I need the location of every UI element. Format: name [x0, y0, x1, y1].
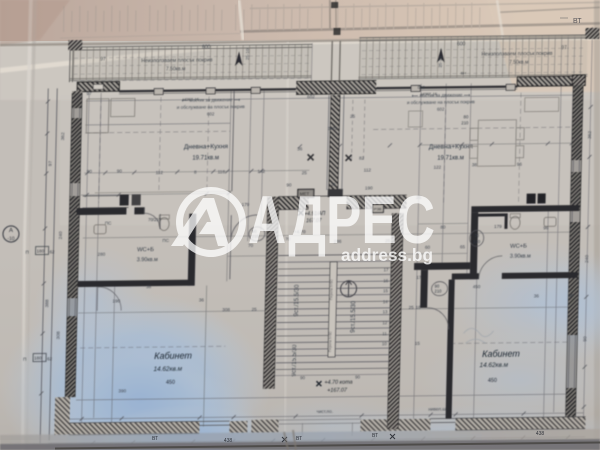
svg-text:82: 82: [359, 156, 365, 161]
svg-text:ВТ: ВТ: [573, 18, 582, 25]
svg-text:240: 240: [58, 231, 64, 239]
svg-text:3.90кв.м: 3.90кв.м: [137, 257, 158, 263]
svg-text:3.90кв.м: 3.90кв.м: [510, 254, 531, 260]
svg-text:17: 17: [416, 275, 422, 280]
svg-text:118: 118: [218, 169, 226, 174]
svg-text:Кабинет: Кабинет: [154, 351, 192, 361]
svg-text:Кабинет: Кабинет: [482, 349, 520, 359]
svg-text:600: 600: [457, 41, 466, 47]
svg-text:WC+Б: WC+Б: [137, 247, 154, 253]
svg-text:25-10: 25-10: [438, 56, 443, 68]
svg-text:280: 280: [98, 252, 106, 257]
svg-text:16: 16: [383, 278, 389, 283]
svg-text:70/210: 70/210: [148, 217, 162, 222]
svg-text:14.62кв.м: 14.62кв.м: [479, 362, 508, 369]
svg-text:25: 25: [409, 305, 415, 310]
svg-text:90: 90: [569, 293, 575, 298]
svg-text:13: 13: [383, 309, 389, 314]
svg-text:ВТ: ВТ: [152, 436, 158, 442]
svg-text:142: 142: [257, 169, 265, 174]
svg-text:9ст./15.5/30: 9ст./15.5/30: [351, 300, 358, 333]
svg-text:П: П: [25, 250, 28, 255]
svg-text:25: 25: [350, 114, 356, 119]
svg-text:600: 600: [202, 45, 211, 51]
svg-text:450: 450: [166, 380, 175, 386]
svg-text:362: 362: [60, 132, 66, 140]
svg-text:7.50кв.м: 7.50кв.м: [166, 66, 186, 72]
svg-text:36: 36: [534, 293, 540, 298]
svg-text:ВТ: ВТ: [296, 436, 302, 442]
svg-text:ВТ: ВТ: [372, 433, 378, 439]
svg-text:Неизползваем плосък покрив: Неизползваем плосък покрив: [481, 51, 553, 58]
svg-text:Перила h=90: Перила h=90: [328, 331, 332, 352]
svg-text:9ст./15.5/30: 9ст./15.5/30: [292, 344, 299, 377]
svg-text:210: 210: [461, 120, 469, 125]
svg-text:и обслужване на плосък покрив: и обслужване на плосък покрив: [177, 104, 246, 110]
svg-text:П: П: [23, 357, 26, 362]
svg-text:address.bg: address.bg: [341, 245, 433, 265]
svg-text:80: 80: [440, 225, 446, 230]
svg-text:+4.70 кота: +4.70 кота: [324, 380, 352, 386]
svg-text:Перила h=90: Перила h=90: [329, 279, 333, 300]
svg-text:ПС: ПС: [105, 221, 112, 226]
svg-text:11: 11: [382, 331, 387, 336]
svg-text:450: 450: [488, 378, 497, 384]
svg-text:⟵ мостик за движение ⟶: ⟵ мостик за движение ⟶: [182, 97, 241, 103]
svg-text:438: 438: [224, 438, 233, 444]
svg-text:97: 97: [100, 57, 106, 63]
svg-text:19.71кв.м: 19.71кв.м: [437, 155, 464, 161]
svg-text:36: 36: [328, 126, 334, 131]
svg-text:602: 602: [437, 107, 445, 112]
svg-text:-10: -10: [7, 236, 14, 242]
svg-text:62: 62: [49, 249, 55, 254]
svg-text:12: 12: [382, 320, 388, 325]
svg-text:179: 179: [494, 224, 502, 229]
svg-text:390: 390: [118, 388, 126, 393]
svg-text:602: 602: [307, 94, 315, 99]
svg-text:17: 17: [383, 267, 389, 272]
svg-text:112: 112: [364, 168, 372, 173]
svg-text:388: 388: [44, 299, 50, 307]
svg-text:16: 16: [416, 305, 422, 310]
svg-text:90: 90: [300, 375, 306, 380]
svg-text:36: 36: [199, 298, 205, 303]
svg-text:Дневна+Кухня: Дневна+Кухня: [184, 143, 229, 151]
svg-text:7.50кв.м: 7.50кв.м: [509, 60, 529, 66]
svg-text:15: 15: [383, 288, 389, 293]
svg-text:и обслужване на плосък покрив: и обслужване на плосък покрив: [407, 99, 476, 105]
svg-text:70: 70: [474, 233, 479, 238]
svg-text:62: 62: [47, 356, 53, 361]
svg-text:Дневна+Кухня: Дневна+Кухня: [429, 143, 474, 151]
svg-text:25: 25: [332, 126, 337, 131]
svg-text:65: 65: [460, 244, 466, 249]
svg-text:190: 190: [112, 299, 120, 304]
svg-text:308: 308: [55, 331, 61, 339]
svg-text:25: 25: [302, 170, 308, 175]
svg-text:9ст./15.5/30: 9ст./15.5/30: [294, 284, 301, 317]
svg-text:Неизползваем плосък покрив: Неизползваем плосък покрив: [141, 57, 213, 64]
svg-text:36: 36: [297, 146, 303, 151]
svg-text:438: 438: [536, 431, 545, 437]
svg-text:96: 96: [517, 162, 523, 167]
svg-text:38: 38: [472, 162, 478, 167]
svg-text:90: 90: [582, 336, 588, 342]
svg-text:112: 112: [156, 170, 164, 175]
svg-text:240: 240: [584, 255, 590, 263]
svg-text:210: 210: [434, 289, 442, 294]
svg-text:210: 210: [473, 239, 481, 244]
svg-text:362: 362: [587, 131, 593, 139]
svg-text:96: 96: [543, 225, 549, 230]
svg-text:97: 97: [47, 160, 53, 166]
svg-text:чист.по.: чист.по.: [316, 409, 333, 414]
svg-text:122: 122: [433, 165, 441, 170]
svg-text:97: 97: [561, 45, 567, 51]
svg-text:10: 10: [382, 341, 388, 346]
svg-text:602: 602: [417, 85, 425, 90]
svg-text:25: 25: [252, 307, 258, 312]
svg-text:нивел.ш.: нивел.ш.: [428, 407, 447, 412]
svg-text:14.62кв.м: 14.62кв.м: [153, 366, 182, 373]
svg-text:15: 15: [415, 341, 421, 346]
svg-text:⟵ мостик за движение ⟶: ⟵ мостик за движение ⟶: [412, 92, 471, 98]
svg-text:+167.07: +167.07: [327, 388, 348, 394]
svg-text:308: 308: [222, 307, 230, 312]
svg-text:90: 90: [355, 375, 361, 380]
svg-text:90: 90: [87, 169, 93, 174]
svg-text:180: 180: [34, 355, 42, 360]
svg-text:38: 38: [146, 284, 152, 289]
svg-text:90: 90: [117, 169, 123, 174]
svg-text:ПС: ПС: [162, 238, 169, 243]
svg-text:25-10: 25-10: [245, 48, 250, 60]
svg-text:97: 97: [87, 91, 93, 96]
svg-text:14: 14: [383, 299, 389, 304]
svg-text:WC+Б: WC+Б: [510, 244, 527, 250]
svg-text:ВН: ВН: [461, 70, 467, 75]
svg-text:450: 450: [473, 284, 481, 289]
svg-text:602: 602: [207, 111, 215, 116]
svg-text:19.71кв.м: 19.71кв.м: [192, 155, 219, 161]
svg-text:180: 180: [36, 248, 44, 253]
svg-text:А: А: [9, 228, 13, 234]
svg-text:80: 80: [463, 114, 469, 119]
